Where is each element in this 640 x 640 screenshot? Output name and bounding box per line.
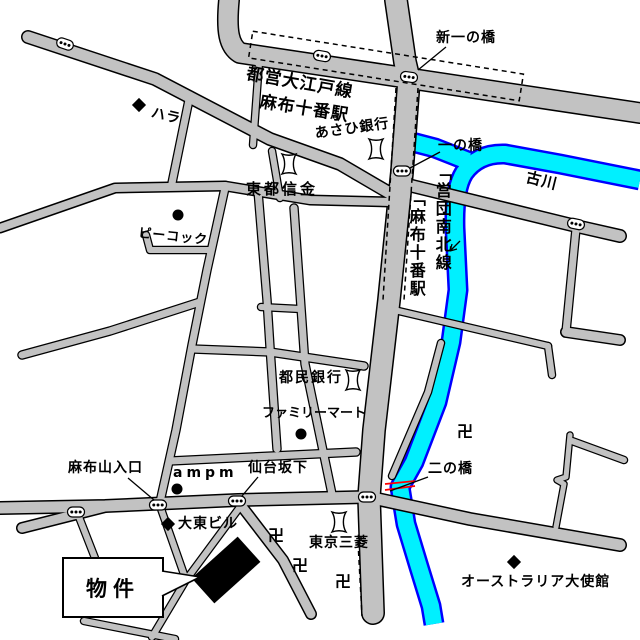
map-canvas: 都営大江戸線 麻布十番駅 あさひ銀行 新一の橋 一の橋 古川 東都信金 ハラ ピ…	[0, 0, 640, 640]
label-ichinohashi: 一の橋	[438, 139, 483, 154]
traffic-light-icon	[150, 500, 167, 510]
traffic-light-icon	[359, 492, 376, 502]
label-australia-embassy: オーストラリア大使館	[461, 575, 610, 590]
traffic-light-icon	[394, 166, 411, 176]
traffic-light-icon	[68, 507, 85, 517]
label-tokyo-mitsubishi: 東京三菱	[309, 536, 369, 551]
property-building	[192, 537, 261, 604]
label-azabuyama-entrance: 麻布山入口	[68, 461, 143, 476]
property-label: 物件	[63, 558, 163, 617]
label-ninohashi: 二の橋	[428, 462, 473, 477]
temple-icon: 卍	[335, 568, 351, 592]
temple-icon: 卍	[268, 522, 284, 546]
label-daito-building: 大東ビル	[178, 517, 238, 532]
label-namboku-station: 「麻布十番駅	[407, 190, 424, 320]
label-tomin-bank: 都民銀行	[279, 371, 343, 386]
label-sendai-sakashita: 仙台坂下	[248, 461, 308, 476]
bank-icon	[346, 370, 360, 390]
label-family-mart: ファミリーマート	[262, 407, 366, 421]
label-ampm: ampm	[173, 466, 238, 481]
circle-marker-icon	[172, 484, 183, 495]
label-namboku-line: 「営団南北線	[433, 164, 450, 294]
bank-icon	[332, 512, 346, 532]
diamond-marker-icon	[507, 555, 521, 569]
circle-marker-icon	[173, 210, 184, 221]
diamond-marker-icon	[132, 98, 146, 112]
label-touto-shinkin: 東都信金	[246, 182, 318, 198]
bank-icon	[282, 154, 296, 174]
bank-icon	[369, 139, 383, 159]
traffic-light-icon	[229, 496, 246, 506]
circle-marker-icon	[296, 429, 307, 440]
label-shin-ichinohashi: 新一の橋	[436, 31, 496, 46]
temple-icon: 卍	[457, 418, 473, 442]
temple-icon: 卍	[292, 552, 308, 576]
traffic-light-icon	[400, 71, 418, 83]
